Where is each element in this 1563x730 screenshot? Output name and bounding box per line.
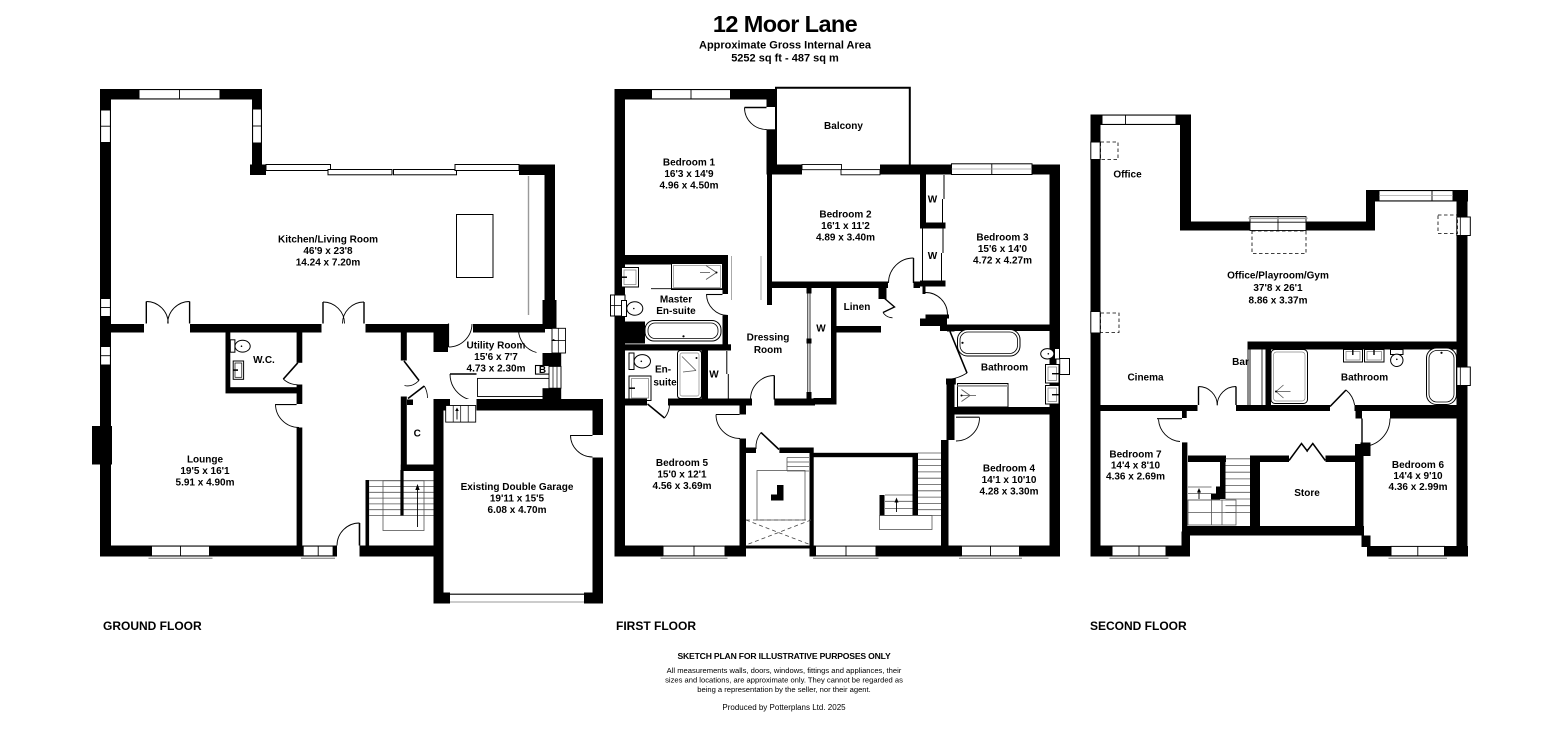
svg-text:Kitchen/Living Room: Kitchen/Living Room [278, 235, 378, 246]
svg-text:W: W [709, 370, 719, 381]
svg-text:Bathroom: Bathroom [1341, 373, 1388, 384]
svg-text:Bathroom: Bathroom [981, 363, 1028, 374]
svg-text:Bedroom 1: Bedroom 1 [663, 158, 716, 169]
svg-text:GROUND FLOOR: GROUND FLOOR [103, 619, 202, 633]
svg-text:B: B [539, 365, 546, 376]
svg-text:16'3 x 14'9: 16'3 x 14'9 [664, 169, 714, 180]
svg-text:16'1 x 11'2: 16'1 x 11'2 [821, 221, 870, 232]
svg-text:Produced by Potterplans Ltd. 2: Produced by Potterplans Ltd. 2025 [722, 703, 846, 712]
svg-text:15'6 x 7'7: 15'6 x 7'7 [474, 352, 518, 363]
svg-text:14.24 x 7.20m: 14.24 x 7.20m [296, 258, 361, 269]
svg-text:46'9 x 23'8: 46'9 x 23'8 [303, 246, 353, 257]
svg-text:W.C.: W.C. [253, 355, 275, 366]
svg-text:SECOND FLOOR: SECOND FLOOR [1090, 619, 1187, 633]
svg-text:6.08 x 4.70m: 6.08 x 4.70m [488, 505, 547, 516]
svg-text:15'6 x 14'0: 15'6 x 14'0 [978, 244, 1028, 255]
svg-text:suite: suite [653, 378, 677, 389]
svg-text:Approximate Gross Internal Are: Approximate Gross Internal Area [699, 40, 872, 52]
svg-text:En-suite: En-suite [656, 306, 696, 317]
svg-text:Room: Room [754, 345, 782, 356]
svg-text:15'0 x 12'1: 15'0 x 12'1 [657, 470, 707, 481]
svg-text:12 Moor Lane: 12 Moor Lane [713, 11, 858, 37]
svg-text:4.36 x 2.99m: 4.36 x 2.99m [1389, 482, 1448, 493]
svg-text:En-: En- [655, 365, 671, 376]
svg-text:SKETCH PLAN FOR ILLUSTRATIVE P: SKETCH PLAN FOR ILLUSTRATIVE PURPOSES ON… [677, 651, 890, 661]
svg-text:14'4 x 8'10: 14'4 x 8'10 [1111, 461, 1161, 472]
svg-text:4.28 x 3.30m: 4.28 x 3.30m [980, 487, 1039, 498]
svg-text:14'1 x 10'10: 14'1 x 10'10 [982, 475, 1037, 486]
svg-text:Cinema: Cinema [1127, 373, 1164, 384]
svg-text:14'4 x 9'10: 14'4 x 9'10 [1393, 471, 1443, 482]
svg-text:4.89 x 3.40m: 4.89 x 3.40m [816, 233, 875, 244]
svg-text:FIRST FLOOR: FIRST FLOOR [616, 619, 696, 633]
svg-text:Bedroom 5: Bedroom 5 [656, 458, 709, 469]
svg-text:Dressing: Dressing [747, 333, 790, 344]
svg-text:Bar: Bar [1232, 357, 1249, 368]
svg-text:Office/Playroom/Gym: Office/Playroom/Gym [1227, 271, 1329, 282]
svg-text:4.73 x 2.30m: 4.73 x 2.30m [467, 364, 526, 375]
svg-text:19'5 x 16'1: 19'5 x 16'1 [180, 466, 230, 477]
svg-text:Bedroom 6: Bedroom 6 [1392, 460, 1445, 471]
svg-text:Bedroom 7: Bedroom 7 [1109, 450, 1162, 461]
svg-text:Lounge: Lounge [187, 455, 224, 466]
svg-text:Bedroom 4: Bedroom 4 [983, 464, 1036, 475]
svg-text:4.36 x 2.69m: 4.36 x 2.69m [1106, 472, 1165, 483]
svg-text:W: W [928, 251, 938, 262]
svg-text:4.56 x 3.69m: 4.56 x 3.69m [653, 481, 712, 492]
svg-text:Balcony: Balcony [824, 121, 863, 132]
svg-text:4.72 x 4.27m: 4.72 x 4.27m [973, 256, 1032, 267]
svg-text:Bedroom 2: Bedroom 2 [819, 210, 872, 221]
svg-text:being a representation by the: being a representation by the seller, no… [697, 685, 871, 694]
svg-text:8.86 x 3.37m: 8.86 x 3.37m [1249, 296, 1308, 307]
svg-text:Office: Office [1113, 170, 1142, 181]
svg-text:All measurements walls, doors,: All measurements walls, doors, windows, … [667, 666, 902, 675]
svg-text:5.91 x 4.90m: 5.91 x 4.90m [176, 478, 235, 489]
svg-text:W: W [928, 195, 938, 206]
svg-text:Existing Double Garage: Existing Double Garage [461, 482, 574, 493]
svg-text:Bedroom 3: Bedroom 3 [976, 233, 1029, 244]
svg-text:19'11 x 15'5: 19'11 x 15'5 [490, 494, 545, 505]
svg-text:sizes and locations, are appro: sizes and locations, are approximate onl… [665, 676, 903, 685]
svg-text:W: W [816, 324, 826, 335]
svg-text:C: C [414, 429, 421, 440]
svg-text:Linen: Linen [844, 302, 871, 313]
svg-text:Utility Room: Utility Room [467, 341, 526, 352]
svg-text:4.96 x 4.50m: 4.96 x 4.50m [660, 181, 719, 192]
svg-text:Master: Master [660, 295, 692, 306]
svg-text:37'8 x 26'1: 37'8 x 26'1 [1253, 283, 1303, 294]
svg-text:5252 sq ft - 487 sq m: 5252 sq ft - 487 sq m [731, 53, 839, 65]
svg-text:Store: Store [1294, 488, 1320, 499]
